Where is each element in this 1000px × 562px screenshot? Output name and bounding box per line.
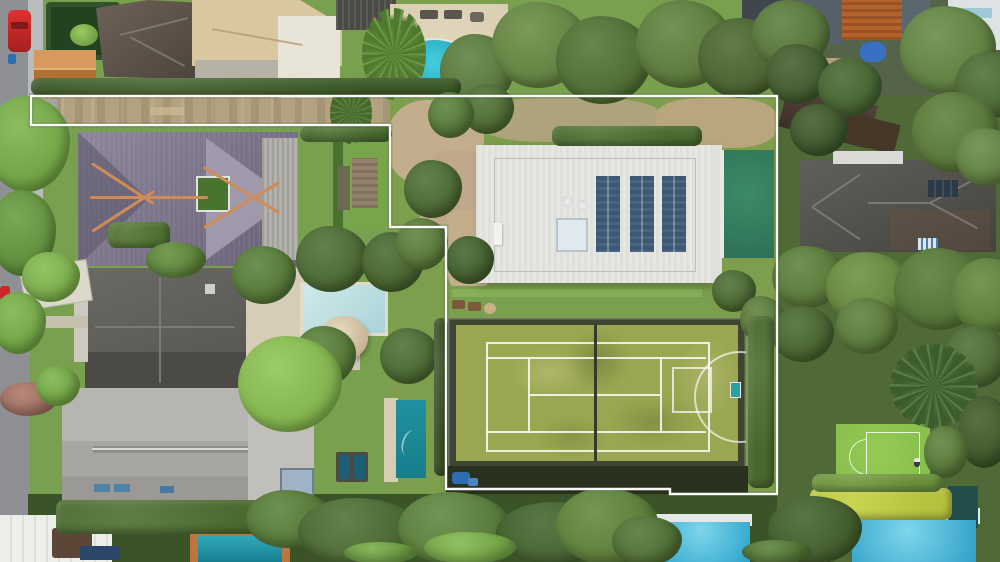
red-car-street2 (0, 286, 10, 300)
tree-canopy (636, 0, 732, 88)
metal-roof-wing (262, 138, 298, 260)
roof-ridge (159, 277, 161, 383)
chimney (205, 284, 215, 294)
person (914, 458, 920, 467)
planter-bench (452, 300, 465, 309)
front-porch (168, 256, 202, 266)
solar-panel-array (630, 176, 654, 252)
blue-tarp-small (468, 478, 478, 486)
patio-furniture (918, 238, 938, 250)
white-building-top (278, 16, 340, 98)
wing-panel (258, 398, 284, 416)
planter-bench (468, 302, 481, 311)
basketball-hoop (730, 382, 741, 398)
tennis-court (448, 318, 746, 468)
solar-panel-array (596, 176, 620, 252)
court-rect-lines (866, 432, 920, 482)
roof-skylight (114, 484, 130, 492)
dark-structure (742, 0, 794, 28)
hip-ridge (868, 202, 932, 204)
tree-canopy (698, 18, 786, 98)
corner-dirt (656, 98, 776, 148)
trellis (338, 166, 350, 210)
white-roofbox (833, 151, 903, 164)
spa-dome (320, 316, 368, 360)
corridor-paver (150, 107, 184, 115)
roof-vent (577, 200, 588, 211)
brown-facet-tint (890, 210, 990, 250)
spa-cell (339, 455, 350, 479)
roof-skylight (160, 486, 174, 493)
parked-car-small (170, 83, 185, 91)
north-dirt (480, 98, 660, 142)
service-line (660, 357, 662, 433)
roof-hatch (494, 223, 502, 245)
blue-tarp (860, 42, 886, 62)
car-windshield (11, 22, 28, 29)
pergola-deck (336, 0, 396, 30)
lounge-chair (444, 10, 462, 19)
round-table (484, 303, 496, 314)
pool-paving (246, 268, 304, 368)
tree-canopy (556, 16, 652, 104)
court-shadow-strip (446, 466, 748, 494)
skylight-box (556, 218, 588, 252)
roof-skylight (94, 484, 110, 492)
garden-shed (352, 158, 378, 208)
wheelie-bin (8, 54, 16, 64)
gray-blue-roof (795, 0, 843, 44)
roof-lower-shade (85, 352, 247, 390)
roof-vent (562, 196, 573, 207)
skylight-strip (958, 8, 992, 18)
lounge-chair (420, 10, 438, 19)
roof-ridge (95, 326, 235, 328)
skylight-grid (928, 180, 958, 197)
wing-skylight (280, 468, 314, 496)
solar-mat (80, 546, 120, 560)
mown-stripe (452, 289, 702, 297)
parked-car-small (194, 84, 208, 91)
garden-path (30, 316, 88, 328)
solar-panel-array (662, 176, 686, 252)
outdoor-table (470, 12, 484, 22)
corridor-gate-structure (33, 99, 57, 123)
azure-pool (652, 522, 750, 562)
bright-bush (70, 24, 98, 46)
azure-pool (852, 520, 976, 562)
net (594, 325, 597, 461)
emerald-pool (720, 150, 774, 258)
red-car[interactable] (8, 10, 31, 52)
shed-ridge (34, 68, 96, 70)
aerial-photo (0, 0, 1000, 562)
rear-structure (902, 0, 930, 50)
teal-pool-bottom (198, 536, 282, 562)
spa-cell (354, 455, 365, 479)
